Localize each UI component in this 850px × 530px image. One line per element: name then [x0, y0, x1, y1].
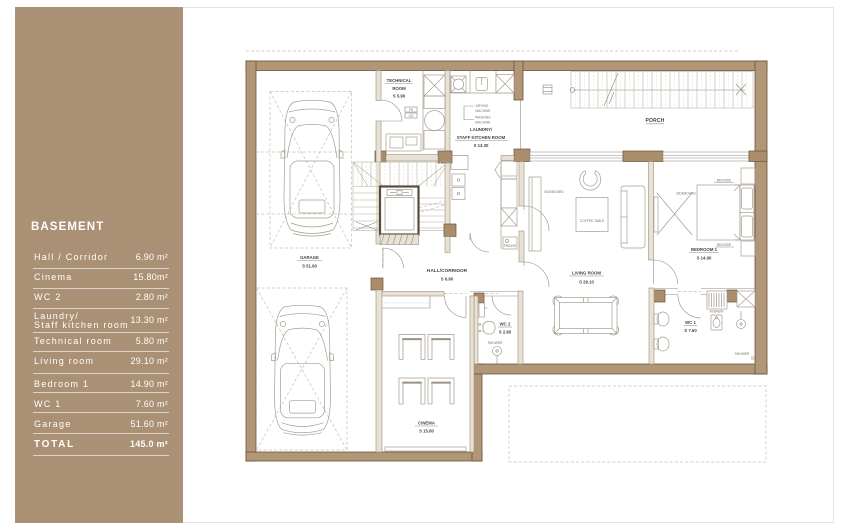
svg-text:CD: CD [409, 114, 414, 118]
svg-text:SIDEBOARD: SIDEBOARD [544, 190, 564, 194]
svg-text:ROOM: ROOM [392, 86, 406, 91]
svg-text:FRIDGE: FRIDGE [504, 244, 517, 248]
svg-text:BEDSIDE: BEDSIDE [717, 179, 732, 183]
svg-text:S 13.30: S 13.30 [474, 143, 489, 148]
svg-text:HALL/CORRIDOR: HALL/CORRIDOR [427, 268, 468, 274]
svg-text:STAFF KITCHEN ROOM: STAFF KITCHEN ROOM [457, 135, 506, 140]
svg-text:S 14.90: S 14.90 [697, 256, 712, 261]
svg-text:S 6.90: S 6.90 [441, 277, 454, 282]
svg-text:WC 1: WC 1 [685, 320, 696, 325]
svg-text:SHOWER: SHOWER [735, 352, 750, 356]
svg-text:S 2.80: S 2.80 [499, 330, 512, 335]
svg-text:DRYING: DRYING [476, 104, 489, 108]
svg-text:MACHINE: MACHINE [475, 109, 491, 113]
svg-text:CINEMA: CINEMA [418, 421, 435, 426]
svg-text:COFFEE TABLE: COFFEE TABLE [580, 219, 605, 223]
svg-text:GARAGE: GARAGE [300, 255, 319, 260]
svg-text:S 15.80: S 15.80 [419, 429, 434, 434]
svg-text:WASHING: WASHING [475, 116, 491, 120]
svg-text:S 51.60: S 51.60 [302, 264, 317, 269]
svg-text:SIDEBOARD: SIDEBOARD [676, 192, 696, 196]
svg-text:S 7.60: S 7.60 [684, 328, 697, 333]
svg-text:PORCH: PORCH [645, 118, 664, 124]
svg-text:S 29.10: S 29.10 [579, 280, 594, 285]
svg-text:FD: FD [409, 108, 414, 112]
svg-text:LIVING ROOM: LIVING ROOM [572, 271, 601, 276]
svg-text:LAUNDRY/: LAUNDRY/ [470, 127, 493, 132]
svg-text:BEDROOM 1: BEDROOM 1 [691, 247, 718, 252]
svg-text:S 5.90: S 5.90 [393, 94, 406, 99]
svg-text:TECHNICAL: TECHNICAL [387, 78, 412, 83]
svg-text:WC 2: WC 2 [500, 322, 511, 327]
svg-text:MACHINE: MACHINE [475, 121, 491, 125]
svg-text:BEDSIDE: BEDSIDE [717, 243, 732, 247]
svg-text:SHOWER: SHOWER [488, 341, 503, 345]
svg-text:W.BASIN: W.BASIN [710, 310, 724, 314]
